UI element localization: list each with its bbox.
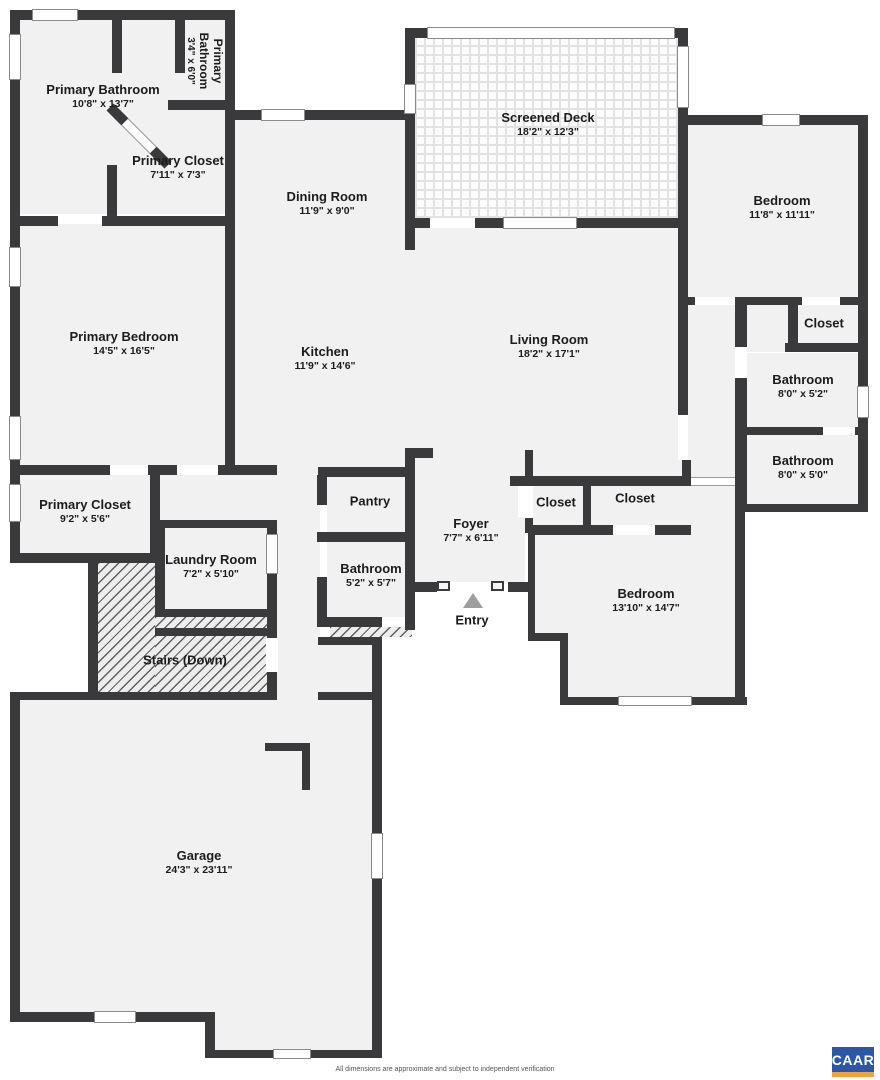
wall xyxy=(735,477,745,705)
room-label-dining-room: Dining Room 11'9" x 9'0" xyxy=(287,190,368,218)
wall xyxy=(528,633,568,641)
wall xyxy=(735,305,747,347)
wall xyxy=(155,628,277,636)
room-label-primary-closet: Primary Closet 7'11" x 7'3" xyxy=(132,154,224,182)
room-label-bedroom-tr: Bedroom 11'8" x 11'11" xyxy=(749,194,815,222)
room-label-foyer: Foyer 7'7" x 6'11" xyxy=(443,517,498,545)
room-label-bathroom-2: Bathroom 8'0" x 5'0" xyxy=(772,454,833,482)
disclaimer-text: All dimensions are approximate and subje… xyxy=(335,1066,554,1073)
window xyxy=(9,34,21,80)
floor-plan: Primary Bathroom 10'8" x 13'7" Primary B… xyxy=(0,0,880,1080)
floor-area xyxy=(568,633,735,697)
wall xyxy=(318,692,382,700)
door-opening xyxy=(518,486,528,517)
wall xyxy=(88,563,98,700)
window xyxy=(9,484,21,522)
wall xyxy=(855,427,868,435)
floor-area xyxy=(235,120,415,467)
wall xyxy=(12,692,270,700)
window xyxy=(371,833,383,879)
wall xyxy=(405,120,415,250)
wall xyxy=(317,532,415,542)
caar-logo-text: CAAR xyxy=(832,1047,874,1072)
wall xyxy=(405,582,437,592)
stairs-hatch xyxy=(330,627,412,637)
room-label-closet-mid: Closet xyxy=(615,492,655,507)
wall xyxy=(525,450,533,486)
room-label-closet-right: Closet xyxy=(804,317,844,332)
room-label-bedroom-br: Bedroom 13'10" x 14'7" xyxy=(612,587,680,615)
wall xyxy=(678,297,695,305)
wall xyxy=(318,637,382,645)
room-label-living-room: Living Room 18'2" x 17'1" xyxy=(510,333,589,361)
door-opening xyxy=(613,525,655,535)
stairs-hatch xyxy=(155,617,267,628)
room-label-primary-bathroom-small: Primary Bathroom 3'4" x 6'0" xyxy=(184,15,224,107)
wall xyxy=(10,465,110,475)
wall xyxy=(102,216,235,226)
room-label-bathroom-1: Bathroom 8'0" x 5'2" xyxy=(772,373,833,401)
window xyxy=(677,46,689,108)
room-label-screened-deck: Screened Deck 18'2" x 12'3" xyxy=(501,111,594,139)
door-jamb xyxy=(491,581,504,591)
room-label-stairs-down: Stairs (Down) xyxy=(143,654,227,669)
wall xyxy=(858,115,868,512)
window xyxy=(273,1049,311,1059)
wall xyxy=(10,216,58,226)
window xyxy=(9,247,21,287)
window xyxy=(266,534,278,574)
room-label-primary-closet-2: Primary Closet 9'2" x 5'6" xyxy=(39,498,131,526)
wall xyxy=(655,525,691,535)
wall xyxy=(107,165,117,220)
wall xyxy=(317,617,382,627)
window xyxy=(618,696,692,706)
room-label-primary-bedroom: Primary Bedroom 14'5" x 16'5" xyxy=(69,330,178,358)
wall xyxy=(785,343,868,352)
wall xyxy=(155,520,165,617)
wall xyxy=(218,465,277,475)
door-opening xyxy=(430,218,475,228)
door-opening xyxy=(177,465,218,475)
wall xyxy=(788,303,798,347)
window xyxy=(503,217,577,229)
stairs-hatch xyxy=(98,563,155,692)
floor-area xyxy=(415,460,691,477)
window xyxy=(261,109,305,121)
door-opening xyxy=(266,638,278,672)
wall xyxy=(10,692,20,1022)
caar-logo-bar xyxy=(832,1072,874,1077)
room-label-garage: Garage 24'3" x 23'11" xyxy=(166,849,233,877)
caar-logo: CAAR xyxy=(832,1047,874,1077)
door-opening xyxy=(110,465,148,475)
wall xyxy=(225,10,235,475)
wall xyxy=(840,297,868,305)
wall xyxy=(528,525,613,535)
wall xyxy=(155,520,277,528)
wall xyxy=(155,609,277,617)
wall xyxy=(112,10,122,73)
wall xyxy=(510,476,691,486)
room-label-closet-small: Closet xyxy=(536,496,576,511)
wall xyxy=(508,582,535,592)
wall xyxy=(317,475,327,505)
wall xyxy=(10,553,160,563)
window xyxy=(32,9,78,21)
room-label-pantry: Pantry xyxy=(350,495,390,510)
wall xyxy=(735,504,868,512)
window xyxy=(427,27,675,39)
wall xyxy=(302,743,310,790)
door-jamb xyxy=(437,581,450,591)
window xyxy=(94,1011,136,1023)
room-label-entry: Entry xyxy=(455,614,488,629)
room-label-primary-bathroom: Primary Bathroom 10'8" x 13'7" xyxy=(46,83,159,111)
wall xyxy=(415,448,433,458)
window xyxy=(404,84,416,114)
room-label-laundry-room: Laundry Room 7'2" x 5'10" xyxy=(165,553,257,581)
wall xyxy=(560,641,568,705)
window xyxy=(762,114,800,126)
wall xyxy=(747,427,823,435)
room-label-bathroom-3: Bathroom 5'2" x 5'7" xyxy=(340,562,401,590)
wall xyxy=(318,467,415,477)
room-label-kitchen: Kitchen 11'9" x 14'6" xyxy=(294,345,355,373)
floor-area xyxy=(215,1012,372,1050)
entry-arrow-icon xyxy=(463,593,483,608)
window xyxy=(857,386,869,418)
floor-area xyxy=(688,305,735,477)
door-opening xyxy=(691,477,735,486)
window xyxy=(9,416,21,460)
wall xyxy=(678,228,688,415)
